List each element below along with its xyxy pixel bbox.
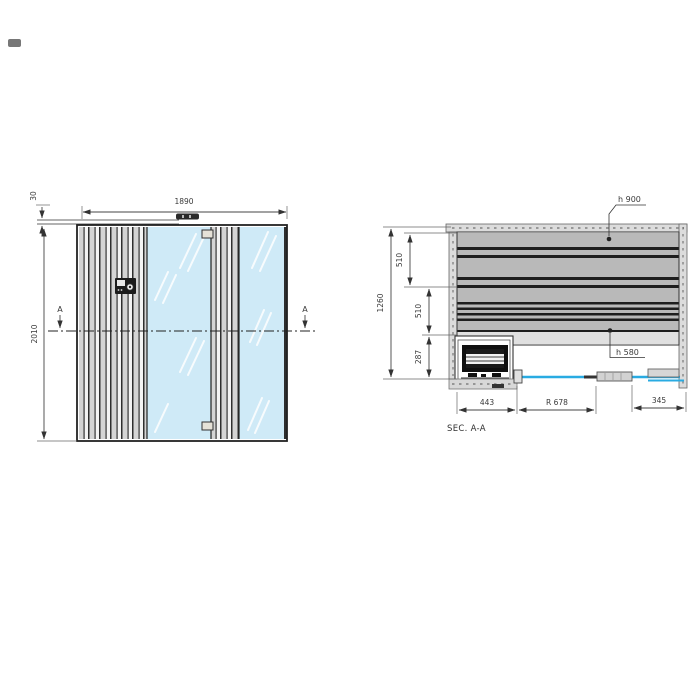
roof-vent: [176, 214, 199, 220]
technical-drawing-page: A A 1890 30: [0, 0, 700, 700]
dim-width-label: 1890: [174, 197, 193, 206]
door-hinge-top: [202, 230, 213, 238]
sauna-drawing-svg: A A 1890 30: [0, 0, 700, 700]
section-marker-left: A: [57, 305, 63, 328]
dim-287: 287: [414, 337, 429, 377]
dim-345-label: 345: [652, 396, 667, 405]
wood-panel-left: [79, 227, 147, 439]
floor-wall: [449, 379, 517, 389]
label-h900-text: h 900: [618, 195, 641, 204]
side-panel: [648, 369, 679, 377]
door-glass-panel: [147, 227, 211, 439]
dim-r678-label: R 678: [546, 398, 568, 407]
front-elevation-drawing: A A 1890 30: [29, 191, 317, 441]
dim-1260-label: 1260: [376, 293, 385, 312]
section-title: SEC. A-A: [447, 424, 486, 434]
label-h580-text: h 580: [616, 348, 639, 357]
dim-443-label: 443: [480, 398, 495, 407]
door-hinge-bottom: [202, 422, 213, 430]
dim-287-label: 287: [414, 350, 423, 365]
dim-roof-30: 30: [29, 191, 50, 236]
dim-443: 443: [457, 386, 517, 414]
door-hinge-post: [514, 370, 522, 383]
dim-510-upper-label: 510: [395, 253, 404, 268]
wood-panel-mid: [211, 227, 239, 439]
dim-345: 345: [632, 385, 686, 412]
dim-r678: R 678: [519, 386, 596, 414]
bottom-note: L 890: [222, 446, 286, 452]
dim-roof-label: 30: [29, 191, 38, 201]
dim-height-label: 2010: [30, 324, 39, 343]
roof-band: [37, 220, 179, 224]
door-leaf-block: [597, 372, 632, 381]
dim-510-upper: 510: [395, 233, 457, 287]
bench-slats: [457, 232, 679, 345]
dim-510-mid-label: 510: [414, 304, 423, 319]
dim-height-2010: 2010: [30, 229, 77, 441]
control-panel: [115, 278, 136, 294]
glass-door-front: [514, 369, 684, 383]
section-marker-right: A: [302, 305, 308, 328]
section-marker-right-label: A: [302, 305, 308, 314]
section-aa-drawing: 1260 510 510 287 443: [376, 195, 687, 434]
section-marker-left-label: A: [57, 305, 63, 314]
